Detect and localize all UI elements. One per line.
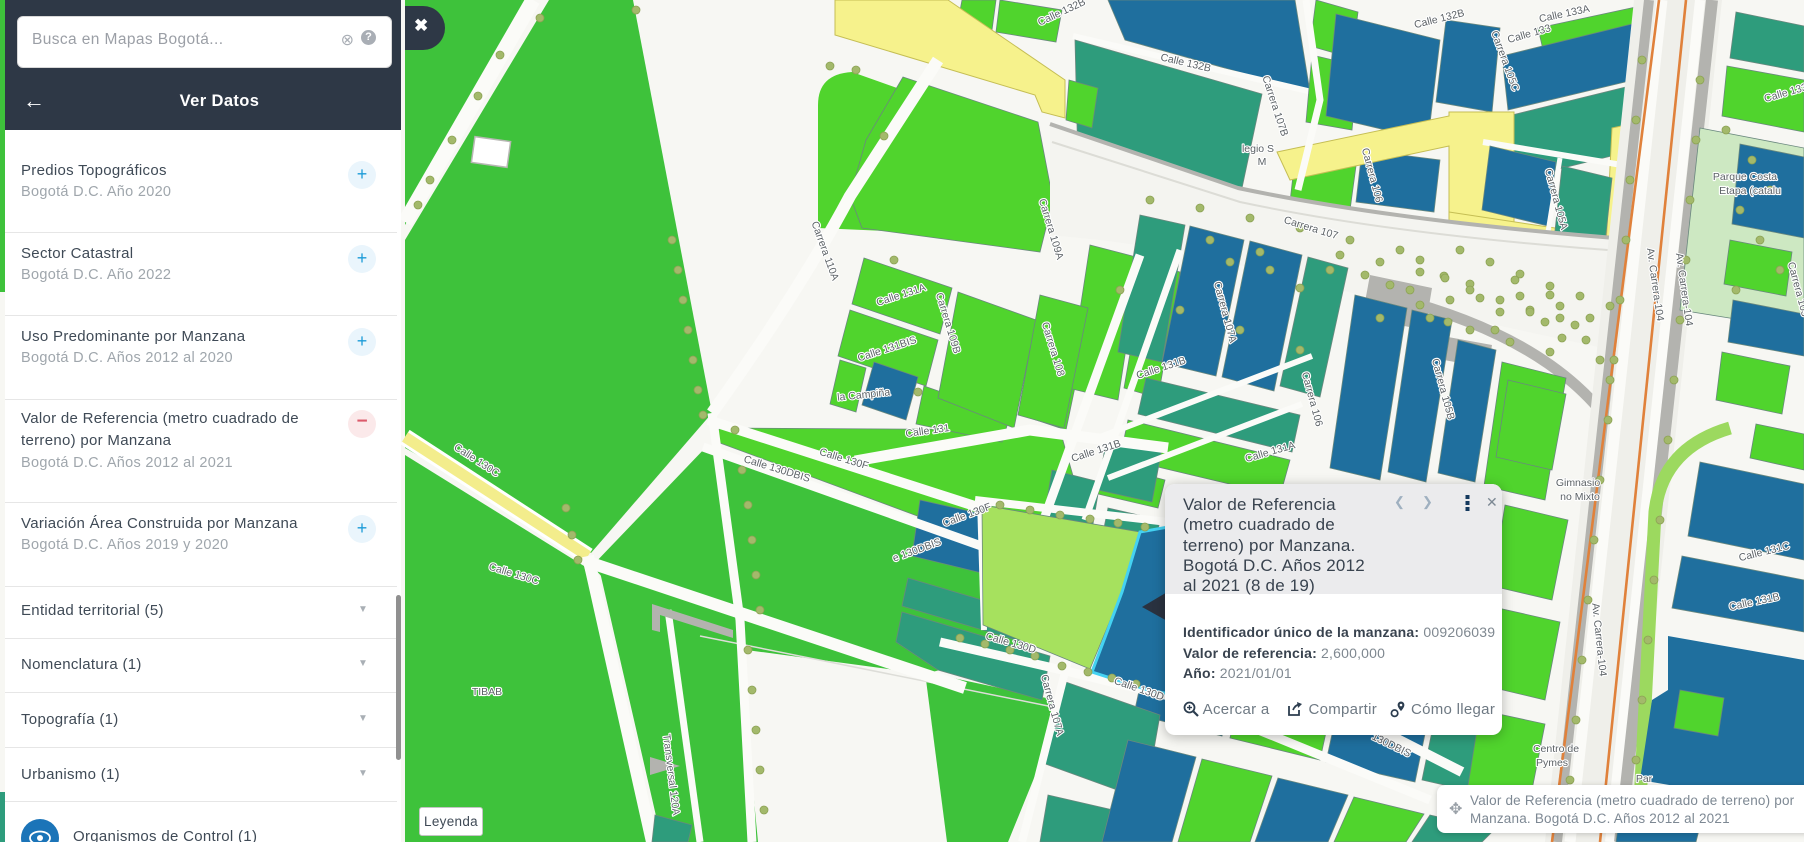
svg-text:no Mixto: no Mixto <box>1560 491 1600 503</box>
svg-text:TIBAB: TIBAB <box>472 686 502 698</box>
svg-text:M: M <box>1258 156 1267 168</box>
svg-text:Gimnasio: Gimnasio <box>1556 477 1601 489</box>
svg-text:Centro de: Centro de <box>1533 743 1579 755</box>
svg-text:Parque Costa: Parque Costa <box>1713 171 1777 183</box>
svg-text:Pymes: Pymes <box>1536 757 1568 769</box>
svg-text:Par: Par <box>1636 773 1653 785</box>
svg-text:legio S: legio S <box>1242 143 1274 155</box>
svg-text:Etapa (catalu: Etapa (catalu <box>1719 185 1781 197</box>
